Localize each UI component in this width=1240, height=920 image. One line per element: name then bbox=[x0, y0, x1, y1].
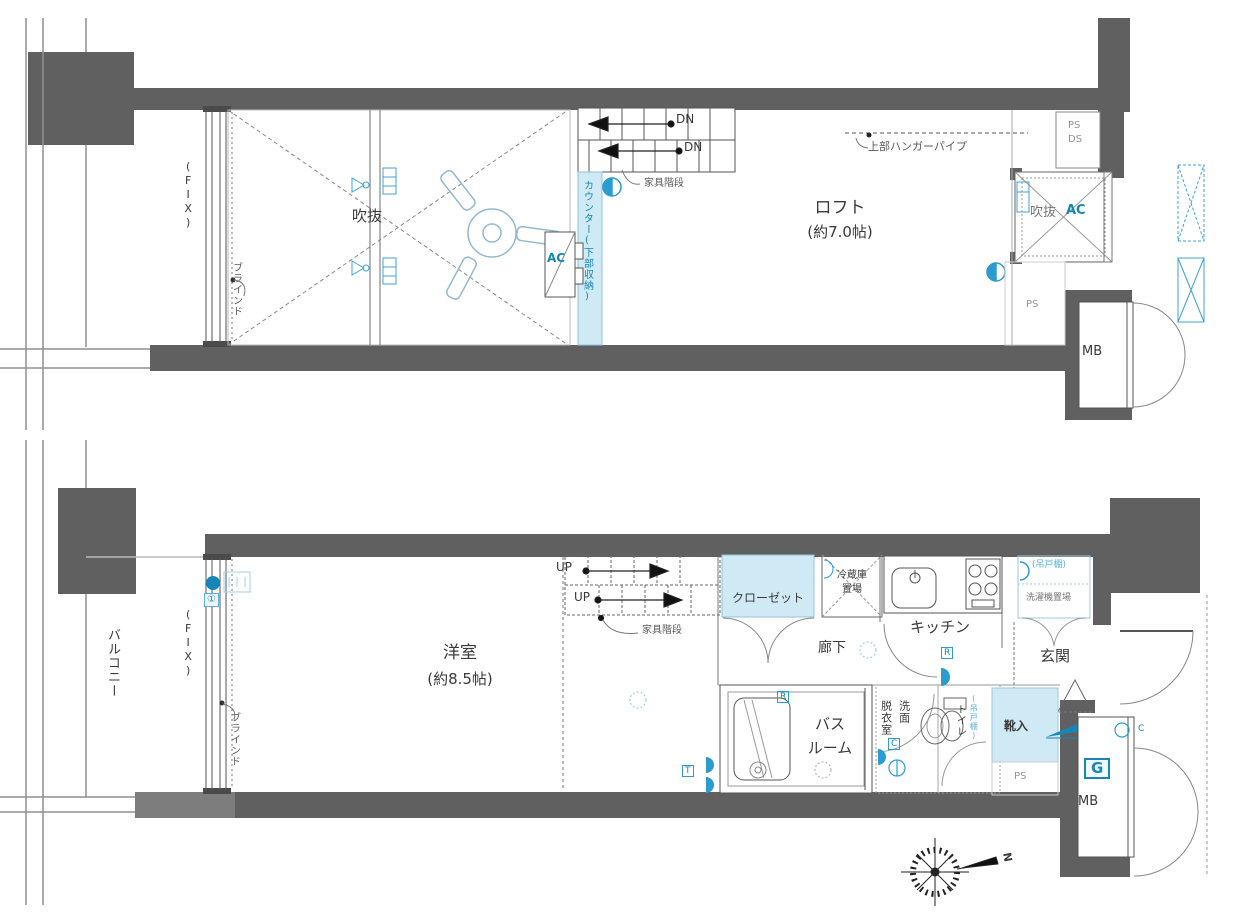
kitchen-label: キッチン bbox=[910, 619, 970, 636]
loft-void-right-label: 吹抜 bbox=[1030, 206, 1056, 221]
stairs-equipment-icon bbox=[603, 178, 621, 196]
balcony-label: バルコニー bbox=[104, 628, 119, 698]
loft-badge-circle bbox=[206, 572, 250, 592]
main-stairs bbox=[565, 555, 720, 615]
kitchen-fixture-icons bbox=[941, 668, 950, 686]
main-furniture-stairs-label: 家具階段 bbox=[642, 625, 682, 637]
entrance-label: 玄関 bbox=[1040, 648, 1070, 665]
closet-box bbox=[722, 555, 814, 663]
bath-blue-fixtures bbox=[706, 757, 714, 793]
floorplan-page: (FIX) ブラインド 吹抜 DN DN 家具階段 カウンター(下部収納) AC… bbox=[0, 0, 1240, 920]
loft-counter-label: カウンター(下部収納) bbox=[581, 180, 593, 340]
main-blind-label: ブラインド bbox=[228, 712, 240, 767]
main-room-label: 洋室 bbox=[415, 644, 505, 664]
gas-meter-label: G bbox=[1084, 758, 1110, 779]
ceiling-fan-icon bbox=[439, 169, 562, 301]
hall-icon bbox=[860, 642, 876, 658]
washer-label: 洗濯機置場 bbox=[1026, 593, 1071, 603]
loft-mb-label: MB bbox=[1082, 345, 1102, 360]
loft-void-left-label: 吹抜 bbox=[352, 208, 382, 225]
dressing-fixtures bbox=[878, 749, 905, 776]
main-stairs-arrows bbox=[583, 564, 682, 633]
toilet-label: トイレ bbox=[954, 704, 966, 737]
shoe-cabinet-label: 靴入 bbox=[1004, 720, 1028, 734]
main-mb-label: MB bbox=[1078, 795, 1098, 810]
main-up-label-1: UP bbox=[556, 561, 572, 575]
fridge-label-2: 置場 bbox=[824, 584, 880, 596]
loft-stairs bbox=[578, 108, 735, 172]
dressing-room-label-1: 脱衣室 bbox=[879, 700, 892, 736]
main-walls bbox=[58, 488, 1200, 877]
bath-r-icon: R bbox=[777, 691, 789, 703]
hanger-pipe-label: 上部ハンガーパイプ bbox=[868, 141, 967, 154]
fridge-label-1: 冷蔵庫 bbox=[824, 570, 880, 582]
equipment-badge: ① bbox=[204, 593, 219, 607]
loft-dn-label-1: DN bbox=[676, 113, 694, 127]
loft-fix-label: (FIX) bbox=[181, 160, 194, 230]
bath-t-icon: T bbox=[682, 765, 694, 777]
loft-blind-label: ブラインド bbox=[230, 262, 242, 317]
main-room-size-label: (約8.5帖) bbox=[398, 671, 522, 688]
hanging-shelf-label: (吊戸棚) bbox=[1032, 560, 1066, 570]
loft-fan-coil-icon bbox=[987, 263, 1005, 281]
hall-label: 廊下 bbox=[818, 640, 846, 656]
compass-icon bbox=[901, 838, 998, 906]
main-ps-label: PS bbox=[1014, 771, 1026, 783]
loft-ac-label-1: AC bbox=[547, 252, 565, 266]
loft-ac-label-2: AC bbox=[1066, 204, 1086, 219]
main-up-label-2: UP bbox=[574, 591, 590, 605]
washbasin-icon bbox=[921, 708, 949, 744]
bath-label-2: ルーム bbox=[796, 740, 864, 757]
loft-ps2-label: PS bbox=[1026, 299, 1038, 311]
main-fix-label: (FIX) bbox=[181, 608, 194, 678]
loft-dn-label-2: DN bbox=[684, 141, 702, 155]
entrance-c-icon: C bbox=[1138, 724, 1144, 734]
toilet-shelf-label: (吊戸棚) bbox=[969, 694, 978, 741]
loft-room-size-label: (約7.0帖) bbox=[775, 224, 905, 241]
floorplan-drawing bbox=[0, 0, 1240, 920]
loft-ds-label: DS bbox=[1068, 134, 1082, 146]
loft-furniture-stairs-label: 家具階段 bbox=[644, 178, 684, 190]
kitchen-r-icon: R bbox=[941, 647, 953, 659]
loft-room-label: ロフト bbox=[790, 199, 890, 219]
bath-label-1: バス bbox=[800, 716, 860, 733]
room-sensor-icon bbox=[630, 692, 646, 708]
closet-label: クローゼット bbox=[724, 592, 812, 606]
loft-ps-label: PS bbox=[1068, 120, 1080, 132]
loft-louver-windows bbox=[1178, 165, 1204, 322]
wall-light-icons bbox=[352, 168, 396, 284]
dressing-room-label-2: 洗面 bbox=[897, 700, 910, 724]
dressing-c-icon: C bbox=[888, 738, 900, 750]
